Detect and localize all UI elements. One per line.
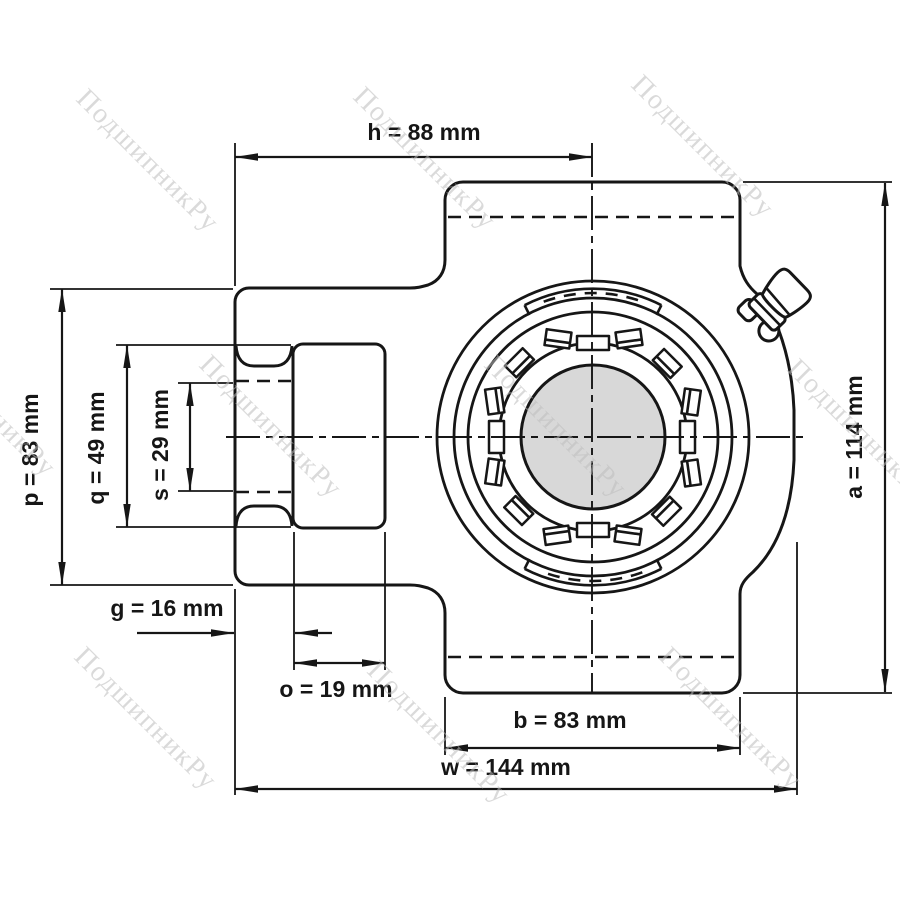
technical-drawing-page: h = 88 mm p = 83 mm q = 49 mm s = 29 mm … [0, 0, 900, 900]
dim-label-b: b = 83 mm [513, 707, 626, 733]
collar-tab-bottom [577, 523, 609, 537]
collar-tab-top [577, 336, 609, 350]
dim-label-q: q = 49 mm [83, 391, 109, 504]
svg-text:ПодшипникРу: ПодшипникРу [347, 81, 502, 236]
svg-text:ПодшипникРу: ПодшипникРу [70, 83, 225, 238]
slide-block [293, 344, 385, 528]
dim-label-s: s = 29 mm [147, 389, 173, 501]
dim-label-g: g = 16 mm [110, 595, 223, 621]
bearing-housing-drawing: h = 88 mm p = 83 mm q = 49 mm s = 29 mm … [0, 0, 900, 900]
svg-text:ПодшипникРу: ПодшипникРу [68, 641, 223, 796]
